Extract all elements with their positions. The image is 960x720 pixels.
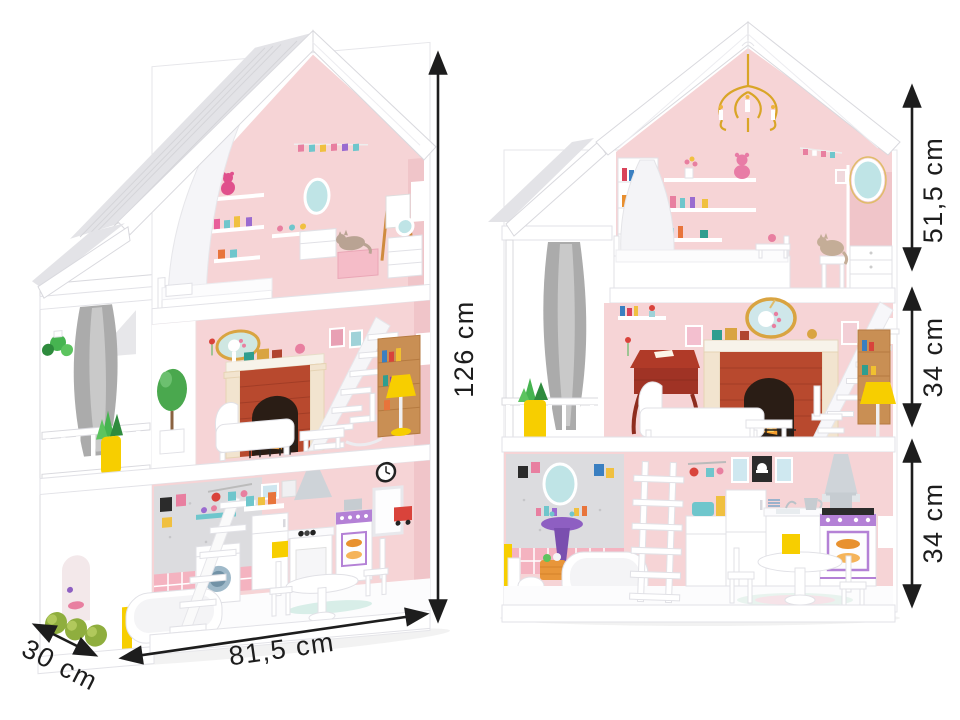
right-house-base [502, 605, 895, 622]
right-house-attic-bedroom [614, 48, 892, 290]
yellow-stool [272, 541, 288, 558]
dollhouse-dimensions-image: 126 cm 81,5 cm 30 cm 51,5 cm 34 cm 34 cm [0, 0, 960, 720]
window-frame [732, 458, 748, 482]
pot-icon [830, 494, 852, 508]
middle-section-label: 34 cm [918, 316, 948, 397]
unicorn-portrait [747, 299, 795, 337]
bookshelf [858, 330, 890, 424]
middle-floor-slab [502, 437, 895, 452]
right-dollhouse [488, 22, 900, 626]
left-house-living-room [152, 300, 430, 468]
illustration: 126 cm 81,5 cm 30 cm 51,5 cm 34 cm 34 cm [0, 0, 960, 720]
height-label: 126 cm [449, 300, 479, 398]
left-dollhouse [32, 19, 450, 677]
window-frame [776, 458, 792, 482]
pot-icon [344, 498, 362, 511]
right-house-living-room [598, 299, 899, 447]
arched-window [60, 552, 92, 625]
attic-section-label: 51,5 cm [918, 137, 948, 244]
bottom-section-label: 34 cm [918, 482, 948, 563]
yellow-toy-box [782, 534, 800, 554]
attic-floor-slab [610, 288, 895, 303]
toaster-icon [692, 502, 714, 516]
bathroom-mirror [544, 464, 576, 504]
attic-side-window [411, 181, 425, 222]
side-window [878, 516, 893, 548]
right-house-kitchen-bathroom [504, 452, 893, 608]
toy-truck-icon [394, 506, 412, 522]
